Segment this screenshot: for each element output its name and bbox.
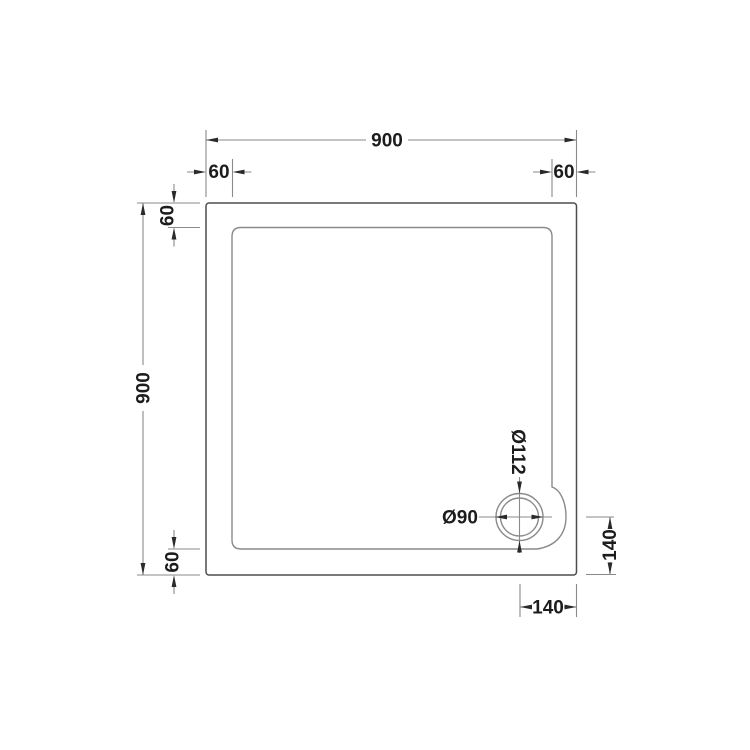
arrow-left-icon xyxy=(577,170,589,175)
dim-label-rim-top-left: 60 xyxy=(208,162,229,183)
arrow-right-icon xyxy=(194,170,206,175)
arrow-right-icon xyxy=(540,170,552,175)
dim-label-drain-offset-bottom: 140 xyxy=(600,529,621,561)
dim-rim-left-top: 60 xyxy=(158,184,201,247)
dim-label-rim-left-bottom: 60 xyxy=(163,551,184,572)
tray-plan-view xyxy=(206,203,577,575)
arrow-up-icon xyxy=(172,575,177,587)
arrow-down-icon xyxy=(141,563,146,575)
dim-label-drain-hole-diameter: Ø90 xyxy=(442,508,478,529)
dim-rim-top-right: 60 xyxy=(533,159,596,197)
tray-inner-edge xyxy=(232,228,566,550)
dim-overall-width: 900 xyxy=(206,130,577,197)
arrow-right-icon xyxy=(565,605,577,610)
dim-drain-offset-bottom: 140 xyxy=(586,517,621,575)
arrow-left-icon xyxy=(206,138,218,143)
dim-rim-top-left: 60 xyxy=(187,159,252,197)
arrow-left-icon xyxy=(520,605,532,610)
arrow-up-icon xyxy=(141,203,146,215)
dim-label-rim-left-top: 60 xyxy=(158,205,179,226)
arrow-down-icon xyxy=(517,482,522,494)
dim-rim-left-bottom: 60 xyxy=(163,530,201,594)
dim-label-drain-outer-diameter: Ø112 xyxy=(507,429,528,474)
arrow-up-icon xyxy=(517,541,522,553)
arrow-right-icon xyxy=(532,515,544,520)
dim-drain-offset-right: 140 xyxy=(520,584,577,619)
arrow-down-icon xyxy=(608,563,613,575)
drawing-canvas: 900 60 60 900 xyxy=(0,0,750,750)
arrow-up-icon xyxy=(172,228,177,240)
dim-drain-outer-diameter: Ø112 xyxy=(507,429,528,553)
dim-overall-height: 900 xyxy=(134,203,201,575)
dim-label-overall-height: 900 xyxy=(134,372,155,404)
arrow-left-icon xyxy=(233,170,245,175)
dim-label-drain-offset-right: 140 xyxy=(532,598,564,619)
dim-label-rim-top-right: 60 xyxy=(553,162,574,183)
shower-tray-dimension-drawing: 900 60 60 900 xyxy=(0,0,750,750)
arrow-right-icon xyxy=(565,138,577,143)
arrow-down-icon xyxy=(172,537,177,549)
dim-label-overall-width: 900 xyxy=(371,131,403,152)
tray-outer-edge xyxy=(206,203,577,575)
arrow-up-icon xyxy=(608,517,613,529)
arrow-down-icon xyxy=(172,191,177,203)
